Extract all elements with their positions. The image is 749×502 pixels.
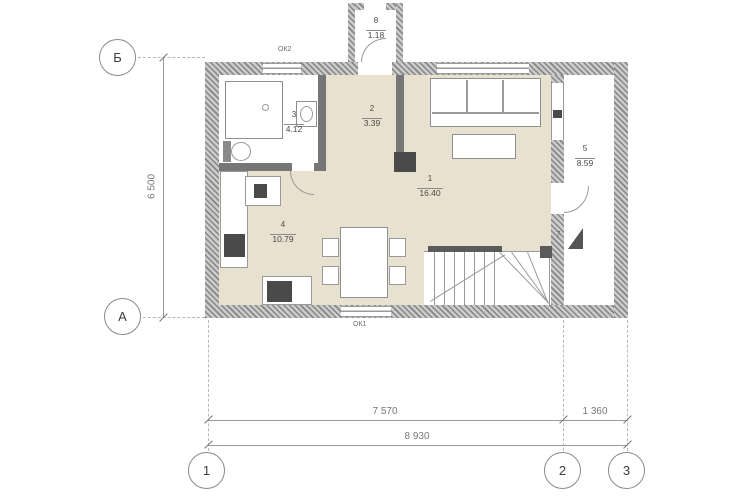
room-area: 8.59	[575, 158, 596, 169]
room-area: 16.40	[417, 188, 442, 199]
dimension-value-span12: 7 570	[345, 406, 425, 417]
vestibule-wall-right	[396, 3, 403, 62]
kitchen-sink	[254, 184, 267, 198]
axis-line-2	[563, 320, 564, 451]
window-top-bathroom	[263, 63, 301, 74]
dimension-line-total	[208, 445, 627, 446]
stair-tread	[454, 252, 455, 305]
fridge	[267, 281, 292, 302]
axis-circle-a: А	[104, 298, 141, 335]
room-number: 5	[565, 144, 605, 153]
stair-tread	[474, 252, 475, 305]
partition-bathroom-south	[314, 163, 326, 171]
axis-line-3	[627, 320, 628, 451]
axis-line-a	[143, 317, 205, 318]
chimney-block	[394, 152, 416, 172]
toilet-tank	[223, 141, 231, 162]
dimension-line-spans	[208, 420, 627, 421]
chair	[389, 238, 406, 257]
wall-axis2-segment	[551, 140, 564, 183]
stair-newel	[540, 246, 552, 258]
wall-right-veranda	[614, 62, 628, 318]
axis-circle-3: 3	[608, 452, 645, 489]
wall-axis2-segment	[551, 75, 564, 83]
room-area: 4.12	[284, 124, 305, 135]
dining-table	[340, 227, 388, 298]
stair-tread	[444, 252, 445, 305]
dimension-value-total: 8 930	[377, 431, 457, 442]
axis-circle-b: Б	[99, 39, 136, 76]
room-area: 1.18	[366, 30, 387, 41]
steps-triangle-icon	[568, 228, 583, 249]
entry-door-opening	[364, 3, 386, 10]
room-number: 4	[263, 220, 303, 229]
chair	[322, 238, 339, 257]
dimension-value-left: 6 500	[147, 157, 158, 217]
room-label-bathroom: 3 4.12	[274, 110, 314, 138]
axis-line-b	[138, 57, 205, 58]
room-area: 3.39	[362, 118, 383, 129]
vestibule-wall-left	[348, 3, 355, 62]
sofa	[430, 78, 541, 127]
room-area: 10.79	[270, 234, 295, 245]
stair-handrail	[428, 246, 502, 252]
door-opening-veranda	[551, 183, 564, 214]
room-label-veranda: 5 8.59	[565, 144, 605, 172]
shower-drain	[262, 104, 269, 111]
room-number: 3	[274, 110, 314, 119]
sofa-seat-edge	[432, 112, 539, 114]
room-number: 2	[352, 104, 392, 113]
dimension-value-span23: 1 360	[565, 406, 625, 417]
sofa-cushion-divider	[502, 80, 504, 112]
room-number: 8	[356, 16, 396, 25]
partition-bathroom-south	[219, 163, 292, 171]
wall-left	[205, 62, 219, 318]
room-label-hall: 2 3.39	[352, 104, 392, 132]
coffee-table	[452, 134, 516, 159]
sofa-cushion-divider	[466, 80, 468, 112]
dimension-line-left	[163, 57, 164, 318]
door-swing-arc	[564, 186, 589, 213]
chair	[322, 266, 339, 285]
axis-line-1	[208, 320, 209, 451]
window-tag: ОК1	[353, 321, 366, 328]
room-number: 1	[410, 174, 450, 183]
axis-circle-2: 2	[544, 452, 581, 489]
axis-circle-1: 1	[188, 452, 225, 489]
chair	[389, 266, 406, 285]
window-bottom	[341, 306, 391, 317]
wall-axis2-segment	[551, 214, 564, 305]
room-label-vestibule: 8 1.18	[356, 16, 396, 44]
steps-number: 7	[556, 230, 560, 239]
door-opening-hall	[358, 62, 392, 75]
toilet-bowl	[231, 142, 251, 161]
window-mullion	[553, 110, 562, 118]
stair-tread	[484, 252, 485, 305]
stove	[224, 234, 245, 257]
window-top-living	[437, 63, 529, 74]
stairs-edge	[549, 252, 550, 305]
floor-plan: ОК2 ОК1 7 1 16.40	[0, 0, 749, 502]
room-label-kitchen: 4 10.79	[263, 220, 303, 248]
room-label-living: 1 16.40	[410, 174, 450, 202]
wall-bottom	[205, 305, 628, 318]
partition-bathroom-hall	[318, 75, 326, 171]
window-tag: ОК2	[278, 46, 291, 53]
